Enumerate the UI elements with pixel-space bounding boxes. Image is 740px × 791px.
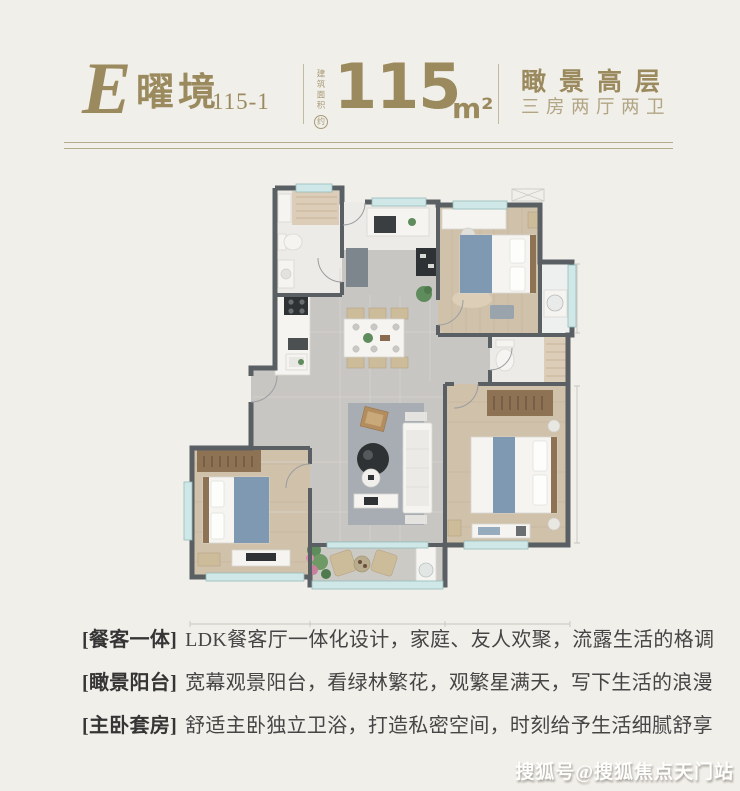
plan-type-letter: E	[82, 52, 131, 126]
feature-row: [瞰景阳台]宽幕观景阳台，看绿林繁花，观繁星满天，写下生活的浪漫	[82, 671, 682, 696]
header: E 曜境 115-1 建筑面积 约 115 m² 瞰景高层 三房两厅两卫	[0, 0, 740, 160]
poster: E 曜境 115-1 建筑面积 约 115 m² 瞰景高层 三房两厅两卫	[0, 0, 740, 791]
header-divider-left	[303, 64, 304, 124]
floor-plan	[160, 172, 580, 627]
kitchen-oven	[288, 338, 308, 350]
area-approx-badge: 约	[314, 115, 328, 129]
balcony-slider	[327, 542, 428, 548]
header-double-rule	[64, 142, 673, 149]
feature-row: [餐客一体]LDK餐客厅一体化设计，家庭、友人欢聚，流露生活的格调	[82, 628, 682, 653]
feature-tag: [瞰景阳台]	[82, 672, 177, 694]
feature-row: [主卧套房]舒适主卧独立卫浴，打造私密空间，时刻给予生活细腻舒享	[82, 714, 682, 739]
plan-code: 115-1	[212, 90, 270, 113]
area-value: 115	[334, 56, 460, 118]
tagline-secondary: 三房两厅两卫	[521, 99, 671, 118]
area-label-vertical: 建筑面积 约	[313, 69, 329, 129]
room-hallway	[422, 335, 490, 384]
tagline-primary: 瞰景高层	[521, 70, 673, 95]
area-unit: m²	[452, 95, 493, 123]
left-wardrobe	[197, 450, 261, 472]
kitchen-island	[346, 248, 368, 287]
header-divider-right	[498, 64, 499, 124]
feature-text: 宽幕观景阳台，看绿林繁花，观繁星满天，写下生活的浪漫	[185, 672, 713, 694]
feature-tag: [餐客一体]	[82, 629, 177, 651]
dining-set	[344, 308, 408, 368]
desk	[442, 209, 506, 229]
living-set	[348, 403, 432, 525]
bath1-shelf	[278, 194, 291, 222]
feature-list: [餐客一体]LDK餐客厅一体化设计，家庭、友人欢聚，流露生活的格调 [瞰景阳台]…	[82, 628, 682, 757]
foyer-sink	[374, 216, 396, 233]
feature-text: 舒适主卧独立卫浴，打造私密空间，时刻给予生活细腻舒享	[185, 715, 713, 737]
feature-text: LDK餐客厅一体化设计，家庭、友人欢聚，流露生活的格调	[185, 629, 714, 651]
kitchen-stove	[284, 297, 308, 315]
bath1-toilet	[284, 234, 302, 250]
watermark: 搜狐号@搜狐焦点天门站	[515, 757, 734, 784]
plan-name: 曜境	[136, 74, 220, 112]
area-label: 建筑面积	[315, 69, 327, 111]
master-wardrobe	[487, 390, 553, 416]
coffee-bar	[416, 248, 438, 276]
feature-tag: [主卧套房]	[82, 715, 177, 737]
balcony-table	[354, 556, 370, 572]
